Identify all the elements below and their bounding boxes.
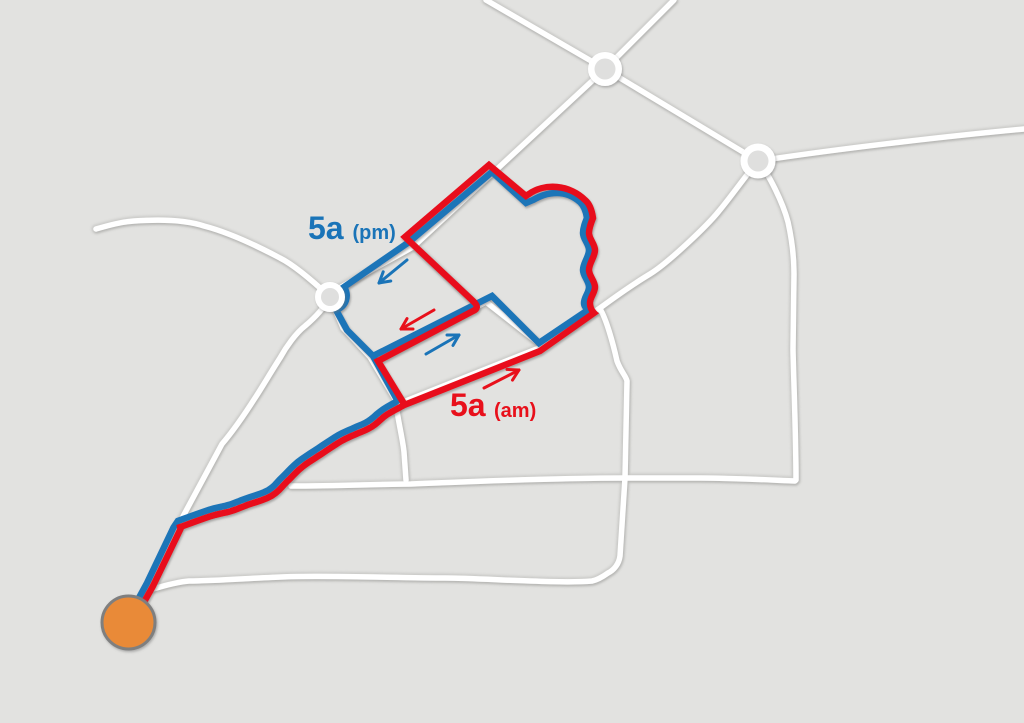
svg-text:(am): (am) bbox=[494, 400, 536, 422]
svg-text:5a: 5a bbox=[308, 210, 344, 246]
svg-text:(pm): (pm) bbox=[353, 222, 396, 244]
svg-text:5a: 5a bbox=[450, 387, 486, 423]
